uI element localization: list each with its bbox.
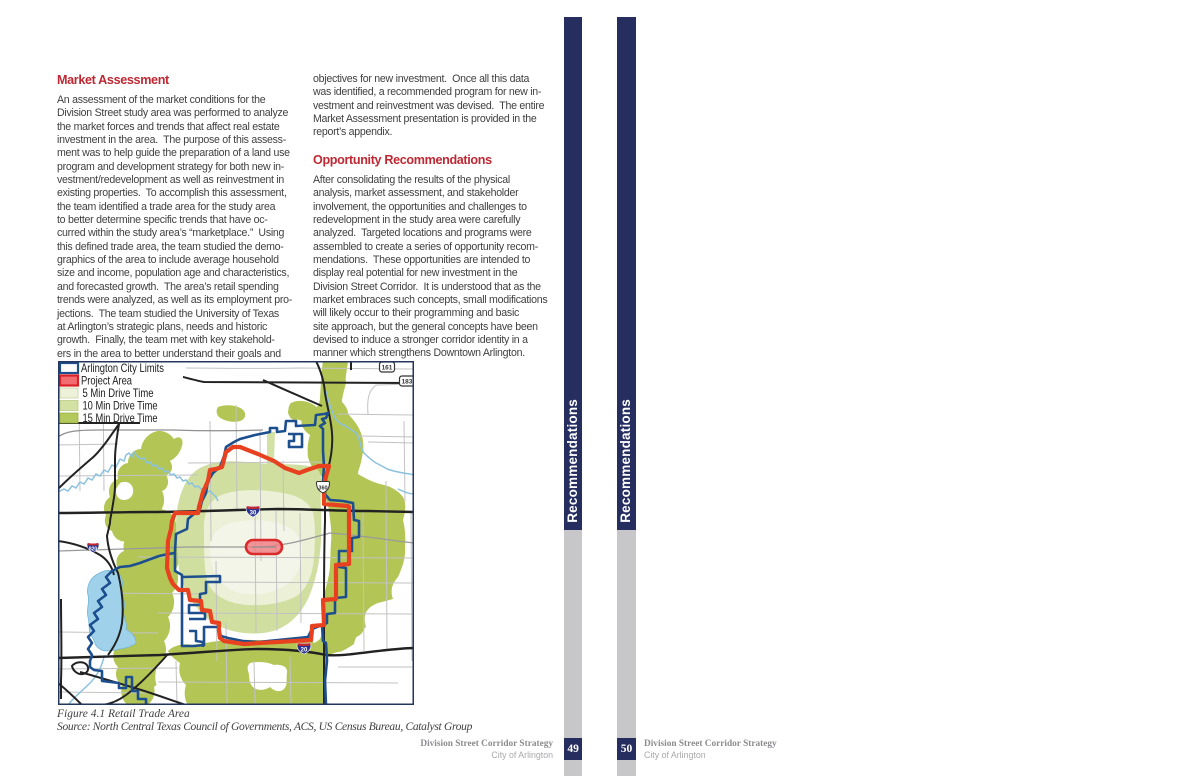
svg-text:Project Area: Project Area <box>81 375 132 388</box>
svg-text:15 Min Drive Time: 15 Min Drive Time <box>83 412 158 425</box>
svg-text:360: 360 <box>318 486 327 492</box>
svg-text:20: 20 <box>301 648 308 654</box>
svg-text:5 Min Drive Time: 5 Min Drive Time <box>83 387 154 400</box>
svg-text:183: 183 <box>402 379 413 386</box>
svg-text:820: 820 <box>89 547 98 553</box>
svg-text:161: 161 <box>382 365 393 372</box>
svg-text:10 Min Drive Time: 10 Min Drive Time <box>83 400 158 413</box>
svg-text:Arlington City Limits: Arlington City Limits <box>81 362 164 375</box>
svg-text:30: 30 <box>250 511 257 517</box>
